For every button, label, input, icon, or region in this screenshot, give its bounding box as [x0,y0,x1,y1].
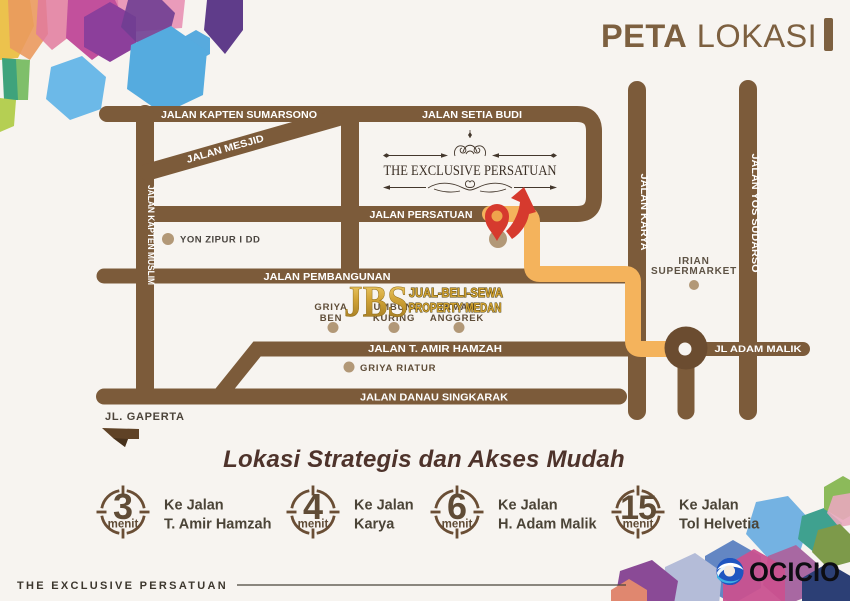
svg-text:JUAL-BELI-SEWA: JUAL-BELI-SEWA [409,286,503,300]
svg-text:Ke Jalan: Ke Jalan [164,498,224,514]
svg-text:Karya: Karya [354,517,395,533]
svg-text:JL. GAPERTA: JL. GAPERTA [105,411,185,423]
svg-text:menit: menit [442,519,473,531]
svg-text:JL ADAM MALIK: JL ADAM MALIK [715,344,802,355]
svg-text:Ke Jalan: Ke Jalan [679,498,739,514]
svg-text:JALAN DANAU SINGKARAK: JALAN DANAU SINGKARAK [360,393,509,404]
svg-text:JALAN KAPTEN SUMARSONO: JALAN KAPTEN SUMARSONO [161,110,317,121]
svg-text:Ke Jalan: Ke Jalan [498,498,558,514]
svg-text:Tol Helvetia: Tol Helvetia [679,517,760,533]
svg-text:JALAN PERSATUAN: JALAN PERSATUAN [370,210,473,221]
svg-text:PETA LOKASI: PETA LOKASI [601,18,817,54]
svg-text:JALAN T. AMIR HAMZAH: JALAN T. AMIR HAMZAH [368,344,502,355]
svg-text:H. Adam Malik: H. Adam Malik [498,517,598,533]
svg-text:GRIYA: GRIYA [314,302,347,313]
svg-text:T. Amir Hamzah: T. Amir Hamzah [164,517,271,533]
svg-text:PROPERTY MEDAN: PROPERTY MEDAN [409,301,502,315]
svg-text:JALAN SETIA BUDI: JALAN SETIA BUDI [422,110,522,121]
svg-text:BEN: BEN [320,313,342,324]
svg-text:Ke Jalan: Ke Jalan [354,498,414,514]
svg-text:menit: menit [298,519,329,531]
svg-text:Lokasi Strategis dan Akses Mud: Lokasi Strategis dan Akses Mudah [223,446,625,473]
svg-text:OCICIO: OCICIO [749,557,840,587]
svg-text:SUPERMARKET: SUPERMARKET [651,266,737,277]
svg-text:JALAN KARYA: JALAN KARYA [638,174,649,251]
svg-text:THE EXCLUSIVE PERSATUAN: THE EXCLUSIVE PERSATUAN [384,163,557,179]
svg-text:menit: menit [108,519,139,531]
svg-text:JBS: JBS [344,277,408,326]
svg-text:GRIYA RIATUR: GRIYA RIATUR [360,363,436,374]
svg-text:menit: menit [623,519,654,531]
svg-text:YON ZIPUR I DD: YON ZIPUR I DD [180,235,260,246]
svg-text:THE EXCLUSIVE PERSATUAN: THE EXCLUSIVE PERSATUAN [17,580,228,592]
svg-text:JALAN KAPTEN MUSLIM: JALAN KAPTEN MUSLIM [146,185,156,285]
svg-text:JALAN YOS SUDARSO: JALAN YOS SUDARSO [749,154,760,273]
